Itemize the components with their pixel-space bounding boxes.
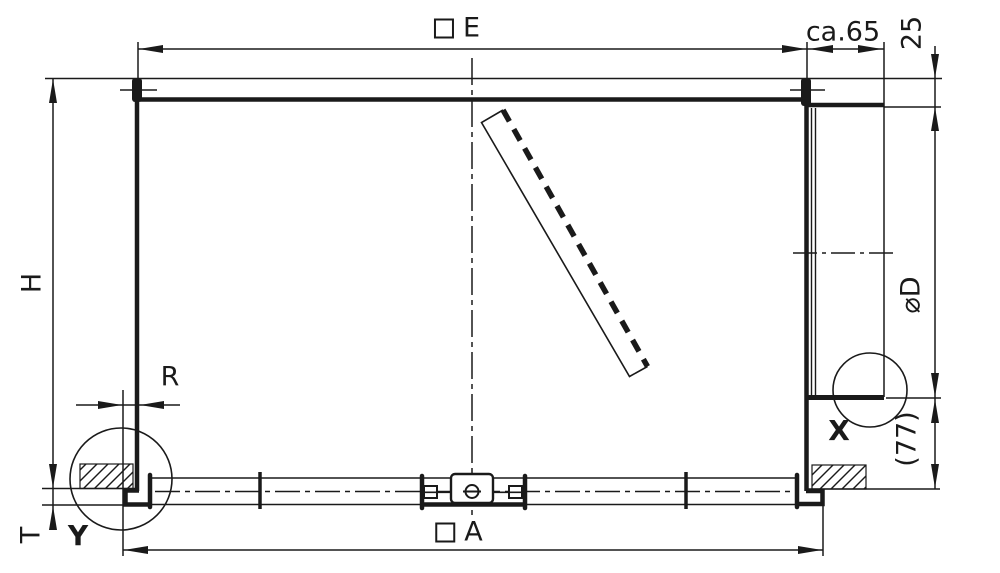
dim-label-e-text: E — [463, 15, 480, 42]
flap-dashed-line — [503, 110, 648, 367]
dim-label-diameter-d-text: ⌀D — [898, 276, 925, 313]
centerlines — [155, 58, 897, 520]
drawing-canvas: E ca.65 25 H ⌀D (77) R T A X Y — [0, 0, 1000, 573]
flap-outline — [482, 110, 648, 377]
dim-label-e: E — [434, 15, 480, 42]
cabinet-outline — [126, 78, 885, 505]
ground-hatch-right — [812, 465, 866, 489]
detail-label-x-text: X — [828, 417, 850, 445]
dim-label-ca65-text: ca.65 — [806, 19, 880, 46]
dim-label-r: R — [161, 364, 180, 391]
detail-label-y: Y — [68, 522, 88, 550]
dim-label-25: 25 — [899, 16, 926, 50]
dim-label-77-text: (77) — [894, 411, 921, 466]
dim-label-diameter-d: ⌀D — [898, 276, 925, 313]
dim-label-r-text: R — [161, 364, 180, 391]
right-wall-inner-lines — [812, 108, 816, 396]
dim-label-h-text: H — [19, 273, 46, 293]
corner-connector-right — [801, 78, 811, 106]
ground-hatch-left — [80, 464, 133, 489]
detail-label-y-text: Y — [68, 522, 88, 550]
dim-label-a: A — [435, 519, 482, 546]
technical-drawing-svg — [0, 0, 1000, 573]
dim-label-h: H — [19, 273, 46, 293]
square-symbol-icon — [435, 522, 455, 542]
dim-label-77: (77) — [894, 411, 921, 466]
right-foot-profile — [798, 491, 823, 504]
floor-bracket — [422, 474, 527, 508]
detail-label-x: X — [828, 417, 850, 445]
dim-label-t-text: T — [18, 527, 45, 544]
dim-label-a-text: A — [464, 519, 482, 546]
square-symbol-icon — [434, 18, 454, 38]
dimension-lines — [53, 46, 935, 550]
dim-label-t: T — [18, 527, 45, 544]
dim-label-25-text: 25 — [899, 16, 926, 50]
inclined-flap — [482, 110, 648, 377]
dim-label-ca65: ca.65 — [806, 19, 880, 46]
